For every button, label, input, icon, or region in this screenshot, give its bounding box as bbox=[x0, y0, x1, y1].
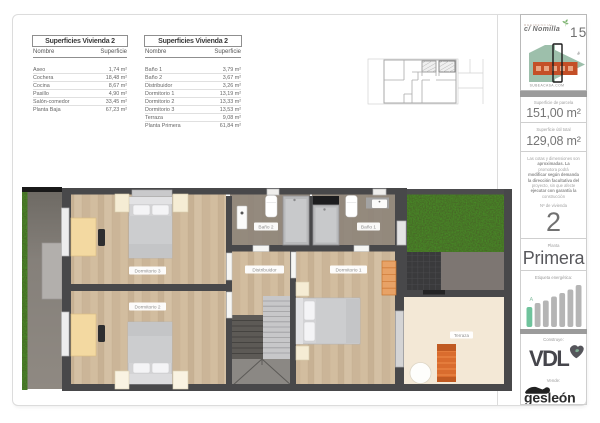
svg-text:Baño 2: Baño 2 bbox=[258, 225, 274, 231]
svg-text:VDL: VDL bbox=[529, 346, 569, 371]
svg-text:Baño 1: Baño 1 bbox=[361, 225, 377, 231]
svg-text:Dormitorio 3: Dormitorio 3 bbox=[134, 269, 160, 275]
svg-text:A: A bbox=[530, 297, 534, 303]
svg-text:Terraza: Terraza bbox=[454, 333, 470, 338]
svg-text:Distribuidor: Distribuidor bbox=[252, 268, 277, 274]
svg-text:Dormitorio 1: Dormitorio 1 bbox=[335, 268, 361, 274]
svg-text:SUBEACASA.COM: SUBEACASA.COM bbox=[530, 84, 565, 88]
svg-text:Dormitorio 2: Dormitorio 2 bbox=[134, 305, 160, 311]
svg-text:gesleón: gesleón bbox=[524, 390, 576, 405]
